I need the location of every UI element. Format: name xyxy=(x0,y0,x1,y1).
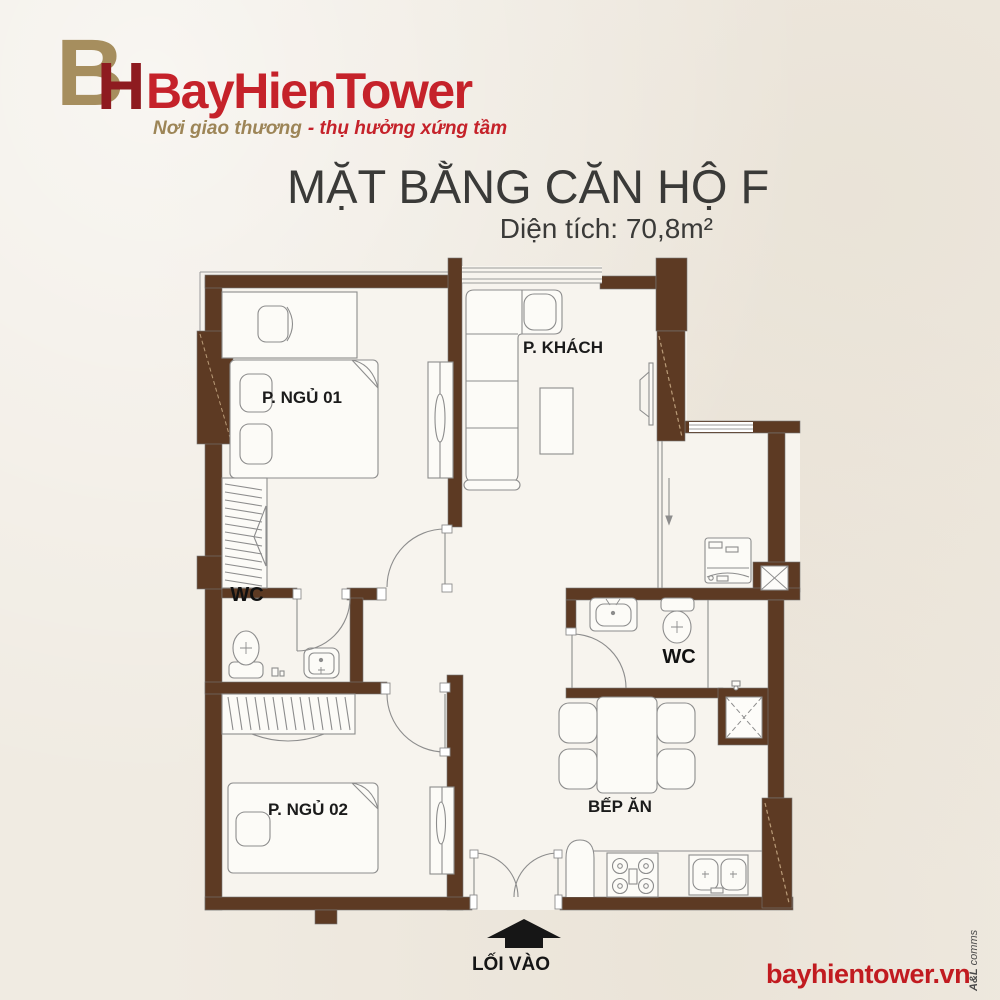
label-kitchen: BẾP ĂN xyxy=(588,797,652,816)
label-wc1: WC xyxy=(230,584,263,606)
website-url: bayhientower.vn xyxy=(766,959,970,990)
tagline-red: - thụ hưởng xứng tầm xyxy=(308,118,507,139)
logo-monogram-h: H xyxy=(97,53,145,120)
brand-tagline: Nơi giao thương- thụ hưởng xứng tầm xyxy=(153,119,507,140)
single-bed-icon xyxy=(228,783,378,873)
title-block: MẶT BẰNG CĂN HỘ F Diện tích: 70,8m² xyxy=(287,162,713,245)
tagline-gold: Nơi giao thương xyxy=(153,118,302,139)
shaft-kitchen xyxy=(726,697,762,738)
bedroom2-cabinet-icon xyxy=(430,787,454,874)
sink2-icon xyxy=(590,598,637,631)
desk-chair-icon xyxy=(258,306,293,342)
wardrobe1-icon xyxy=(222,478,267,588)
toilet2-icon xyxy=(661,598,694,643)
fridge-icon xyxy=(566,840,594,897)
entrance-arrow-icon xyxy=(487,919,561,948)
living-room-window xyxy=(462,266,602,283)
label-bedroom2: P. NGỦ 02 xyxy=(268,800,348,819)
double-bed-icon xyxy=(230,360,378,478)
kitchen-sink-icon xyxy=(689,855,748,895)
desk-icon xyxy=(222,292,357,358)
poster-background: B H BayHienTower Nơi giao thương- thụ hư… xyxy=(0,0,1000,1000)
floor-plan: P. NGỦ 01 P. KHÁCH WC WC P. NGỦ 02 BẾP Ă… xyxy=(190,245,810,985)
label-wc2: WC xyxy=(662,646,695,668)
sink-icon xyxy=(304,648,339,678)
label-entrance: LỐI VÀO xyxy=(472,953,550,975)
label-bedroom1: P. NGỦ 01 xyxy=(262,388,342,407)
service-window xyxy=(689,422,753,432)
coffee-table-icon xyxy=(540,388,573,454)
agency-credit-rest: comms xyxy=(968,930,980,965)
label-living-room: P. KHÁCH xyxy=(523,338,603,357)
wardrobe2-icon xyxy=(222,694,355,741)
page-title: MẶT BẰNG CĂN HỘ F xyxy=(287,162,713,211)
bedroom1-cabinet-icon xyxy=(428,362,453,478)
washing-machine-icon xyxy=(705,538,751,583)
agency-credit-bold: A&L xyxy=(968,968,980,991)
brand-name: BayHienTower xyxy=(146,66,472,116)
apartment-area: Diện tích: 70,8m² xyxy=(287,213,713,245)
agency-credit: A&L comms xyxy=(968,930,980,991)
stove-icon xyxy=(607,853,658,897)
shaft-service xyxy=(761,566,788,590)
